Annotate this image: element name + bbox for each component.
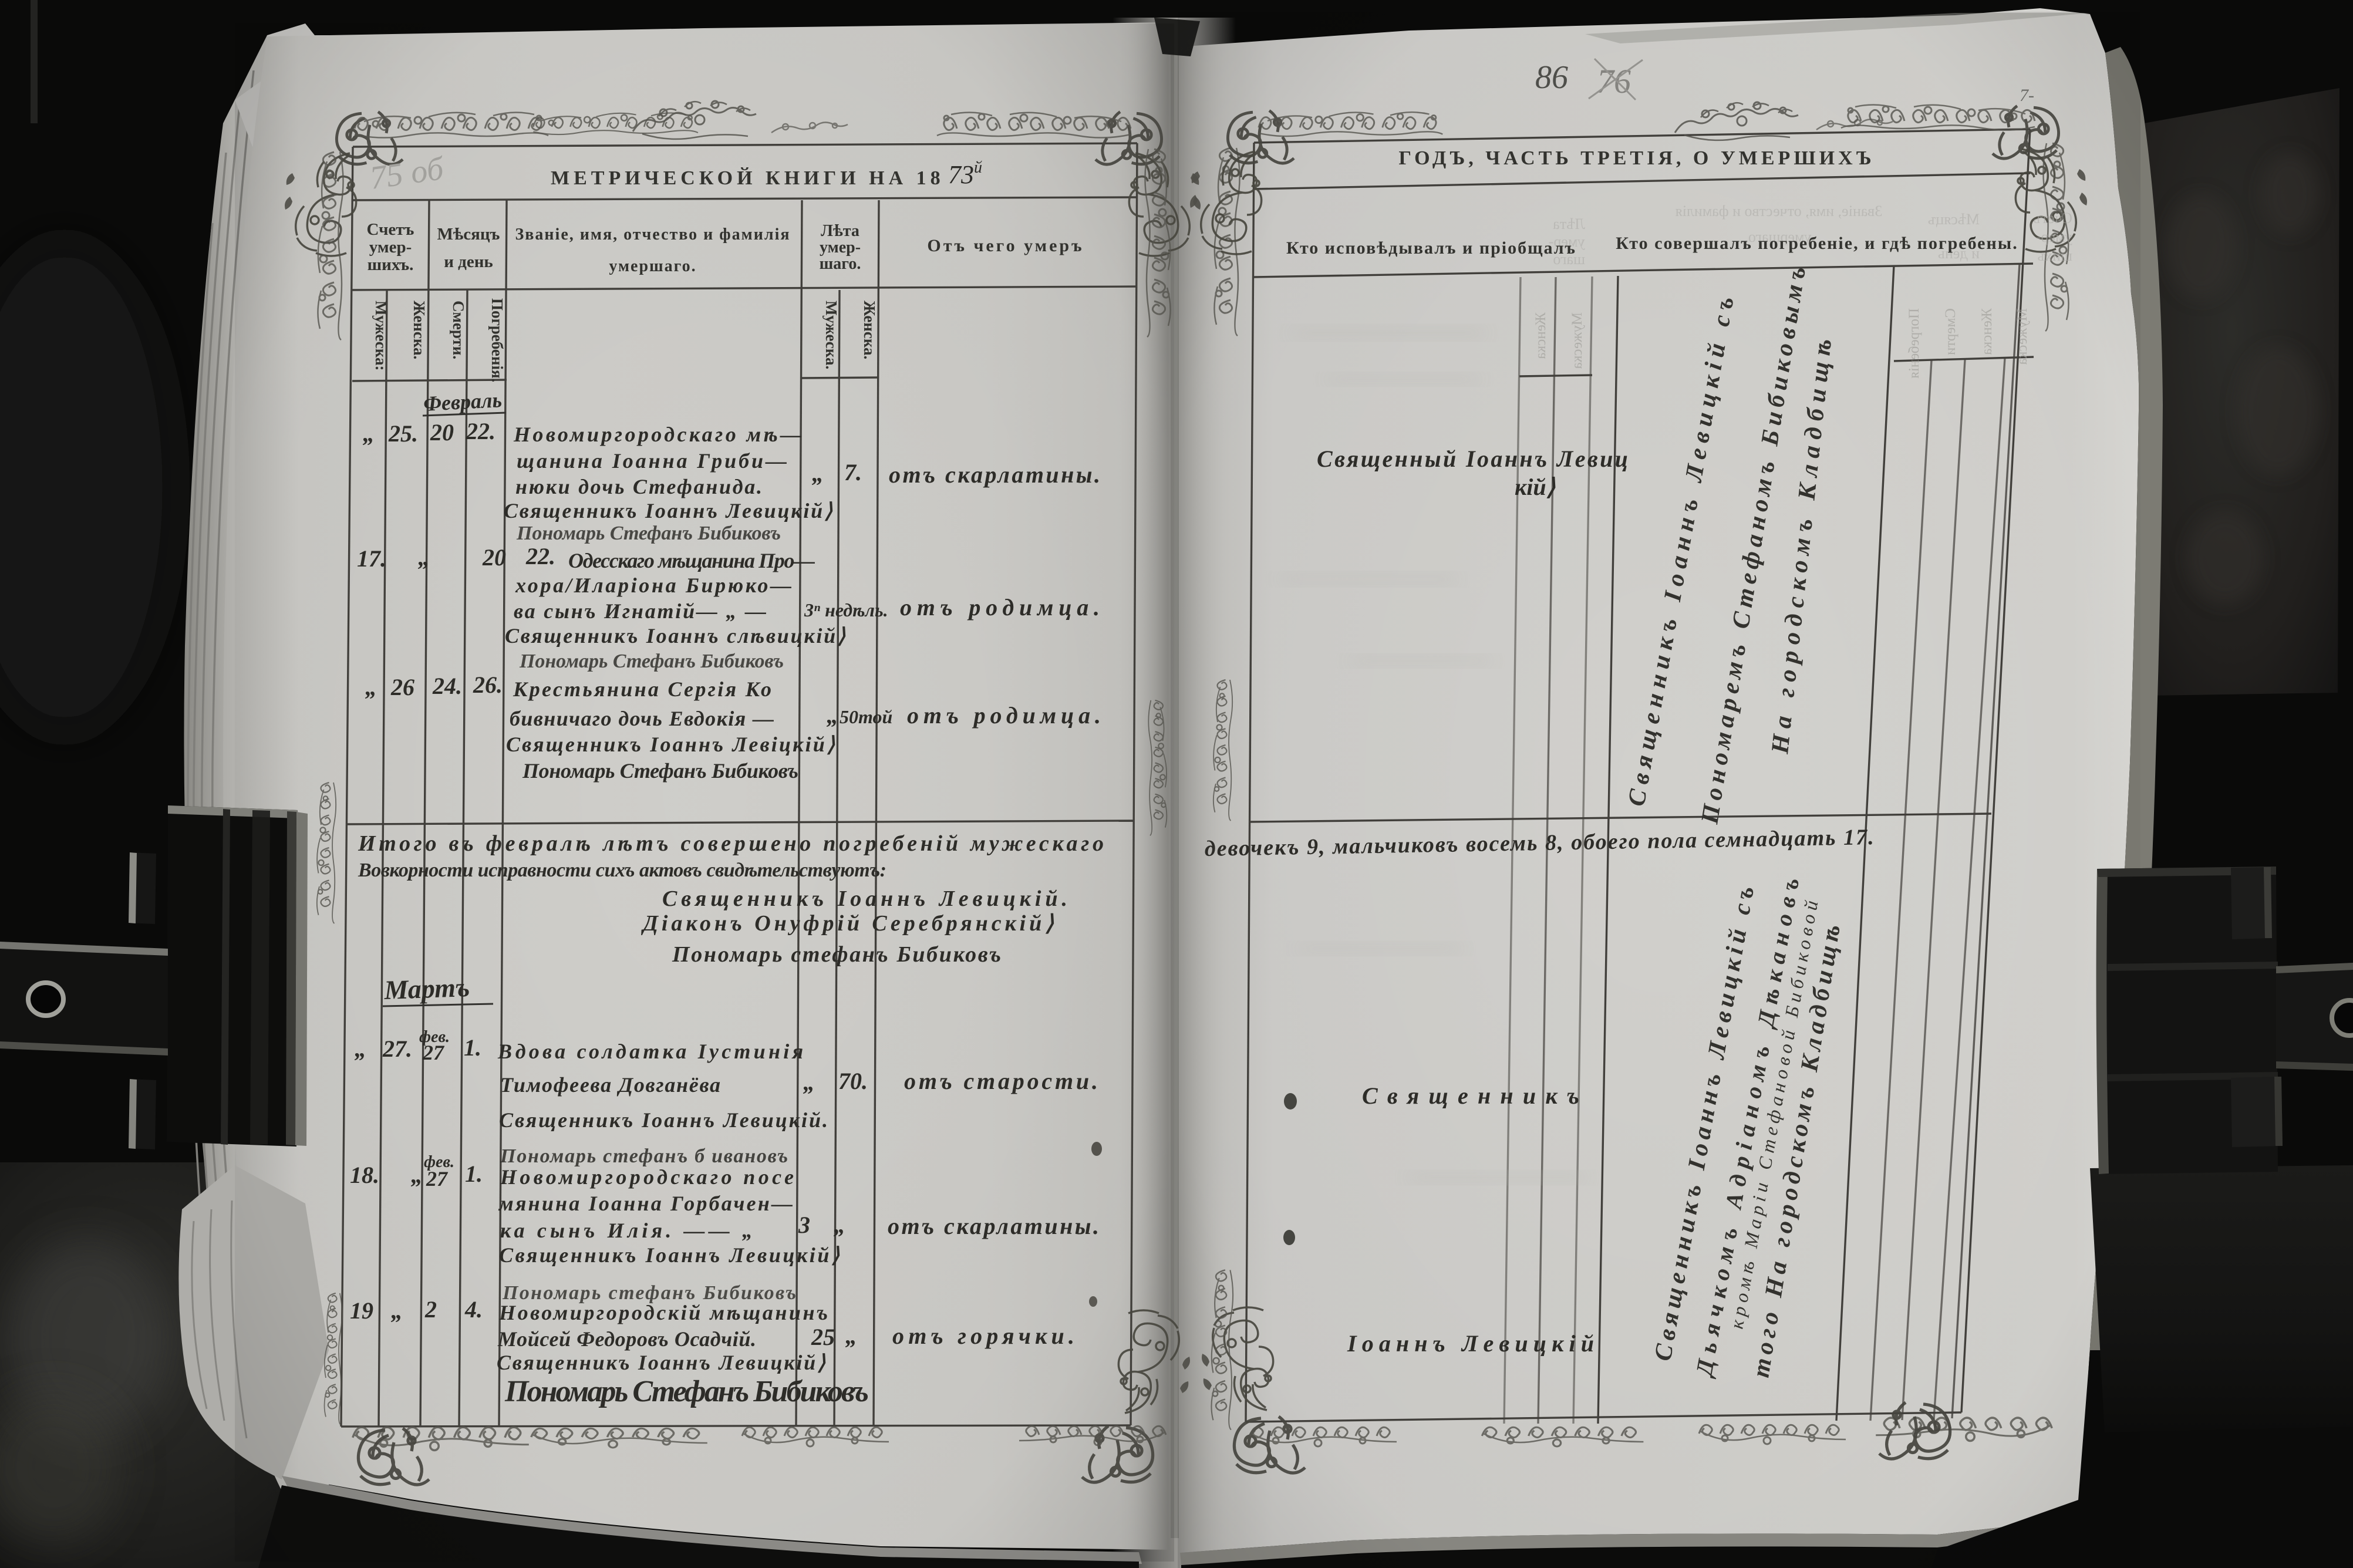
- svg-text:хора/Иларіона Бирюко—: хора/Иларіона Бирюко—: [515, 574, 791, 597]
- svg-text:Мужеска: Мужеска: [2014, 308, 2030, 365]
- svg-text:Погребенія: Погребенія: [1906, 308, 1922, 379]
- svg-text:Вдова солдатка Іустинія: Вдова солдатка Іустинія: [497, 1040, 803, 1063]
- svg-text:Отъ чего умеръ: Отъ чего умеръ: [927, 236, 1084, 255]
- svg-text:22.: 22.: [525, 543, 555, 569]
- svg-text:3ⁿ недѣль.: 3ⁿ недѣль.: [804, 599, 888, 621]
- svg-text:7.: 7.: [844, 459, 862, 485]
- svg-text:70.: 70.: [838, 1068, 868, 1094]
- svg-text:25.: 25.: [388, 420, 418, 447]
- svg-text:Женска.: Женска.: [410, 301, 428, 359]
- svg-text:Одесскаго мѣщанина Про—: Одесскаго мѣщанина Про—: [568, 549, 815, 572]
- svg-text:и день: и день: [444, 252, 493, 271]
- svg-text:отъ скарлатины.: отъ скарлатины.: [888, 1213, 1099, 1239]
- svg-text:4.: 4.: [464, 1296, 483, 1323]
- svg-text:шихъ: шихъ: [2038, 247, 2072, 264]
- svg-text:3: 3: [798, 1212, 810, 1238]
- svg-text:умершаго.: умершаго.: [609, 257, 696, 275]
- svg-text:умер-: умер-: [369, 238, 412, 257]
- svg-text:Іоаннъ Левицкій: Іоаннъ Левицкій: [1347, 1330, 1594, 1357]
- svg-text:Священникъ Іоаннъ слѣвицкій⟩: Священникъ Іоаннъ слѣвицкій⟩: [505, 624, 846, 648]
- svg-text:7-: 7-: [2020, 86, 2034, 105]
- svg-text:20: 20: [482, 544, 506, 571]
- svg-text:умер-: умер-: [2036, 228, 2072, 245]
- svg-text:Тимофеева Довганёва: Тимофеева Довганёва: [500, 1073, 720, 1097]
- svg-text:отъ старости.: отъ старости.: [904, 1068, 1098, 1094]
- svg-text:нюки дочь Стефанида.: нюки дочь Стефанида.: [515, 475, 762, 498]
- svg-text:Мартъ: Мартъ: [383, 972, 470, 1005]
- svg-text:ГОДЪ, ЧАСТЬ ТРЕТІЯ, О УМЕРШИХЪ: ГОДЪ, ЧАСТЬ ТРЕТІЯ, О УМЕРШИХЪ: [1398, 147, 1875, 169]
- svg-text:Кто исповѣдывалъ и пріобщалъ: Кто исповѣдывалъ и пріобщалъ: [1286, 238, 1576, 258]
- svg-text:20: 20: [430, 419, 454, 446]
- svg-text:25: 25: [811, 1324, 835, 1350]
- svg-text:умер-: умер-: [820, 238, 861, 257]
- svg-text:26: 26: [390, 674, 414, 700]
- svg-text:Пономарь Стефанъ Бибиковъ: Пономарь Стефанъ Бибиковъ: [504, 1375, 869, 1408]
- svg-text:„: „: [391, 1297, 403, 1324]
- svg-text:„: „: [812, 460, 824, 487]
- svg-text:Итого въ февралѣ лѣтъ совершен: Итого въ февралѣ лѣтъ совершено погребен…: [358, 831, 1104, 856]
- svg-text:„: „: [803, 1069, 815, 1095]
- svg-text:отъ скарлатины.: отъ скарлатины.: [889, 461, 1100, 488]
- svg-text:„: „: [363, 420, 375, 447]
- svg-text:Званіе, имя, отчество и фамилі: Званіе, имя, отчество и фамилія: [515, 225, 791, 244]
- svg-text:Новомиргородскій мѣщанинъ: Новомиргородскій мѣщанинъ: [498, 1301, 828, 1324]
- svg-text:Женска: Женска: [1533, 312, 1549, 359]
- svg-text:Лѣта: Лѣта: [1553, 215, 1585, 232]
- svg-text:Мѣсяцъ: Мѣсяцъ: [437, 225, 500, 244]
- svg-text:27.: 27.: [382, 1036, 412, 1062]
- svg-text:Священникъ Іоаннъ Левицкій⟩: Священникъ Іоаннъ Левицкій⟩: [504, 499, 833, 522]
- svg-text:Погребенія.: Погребенія.: [488, 298, 506, 382]
- svg-text:17.: 17.: [357, 545, 386, 572]
- svg-text:Священникъ Іоаннъ Левіцкій⟩: Священникъ Іоаннъ Левіцкій⟩: [506, 733, 835, 756]
- svg-text:27: 27: [426, 1167, 449, 1191]
- svg-text:Счетъ: Счетъ: [2034, 210, 2072, 227]
- svg-text:„: „: [365, 674, 377, 700]
- svg-text:1.: 1.: [465, 1161, 483, 1187]
- svg-text:Вовкорности исправности сихъ а: Вовкорности исправности сихъ актовъ свид…: [358, 859, 886, 881]
- svg-text:27: 27: [422, 1041, 445, 1064]
- svg-text:ва сынъ Игнатій— „ —: ва сынъ Игнатій— „ —: [514, 599, 766, 623]
- svg-text:86: 86: [1535, 59, 1568, 96]
- svg-text:Женска.: Женска.: [861, 301, 878, 359]
- svg-text:Мужеска.: Мужеска.: [822, 301, 840, 369]
- svg-text:Діаконъ Онуфрій Серебрянскій⟩: Діаконъ Онуфрій Серебрянскій⟩: [641, 911, 1054, 936]
- svg-text:„: „: [355, 1036, 366, 1062]
- svg-text:22.: 22.: [466, 418, 495, 444]
- svg-text:МЕТРИЧЕСКОЙ КНИГИ НА 18: МЕТРИЧЕСКОЙ КНИГИ НА 18: [551, 167, 945, 189]
- svg-text:Кто совершалъ погребеніе, и гд: Кто совершалъ погребеніе, и гдѣ погребен…: [1616, 234, 2018, 253]
- svg-text:50той: 50той: [840, 706, 892, 727]
- svg-text:Священный Іоаннъ Левиц: Священный Іоаннъ Левиц: [1317, 446, 1628, 472]
- svg-text:24.: 24.: [432, 673, 462, 699]
- svg-text:Смерти.: Смерти.: [450, 301, 467, 359]
- svg-text:Смерти: Смерти: [1943, 308, 1958, 355]
- svg-text:Женска: Женска: [1979, 308, 1995, 355]
- svg-text:шаго.: шаго.: [820, 255, 861, 273]
- svg-text:Мужеска:: Мужеска:: [372, 301, 390, 370]
- svg-text:„: „: [827, 702, 838, 729]
- svg-text:Священникъ Іоаннъ Левицкій⟩: Священникъ Іоаннъ Левицкій⟩: [497, 1351, 826, 1374]
- svg-text:Пономарь Стефанъ Бибиковъ: Пономарь Стефанъ Бибиковъ: [522, 759, 798, 783]
- svg-text:2: 2: [424, 1296, 437, 1323]
- svg-text:кій⟩: кій⟩: [1515, 474, 1556, 500]
- svg-text:Пономарь стефанъ Бибиковъ: Пономарь стефанъ Бибиковъ: [672, 942, 1001, 967]
- svg-text:„: „: [834, 1212, 845, 1238]
- svg-text:щанина Іоанна Гриби—: щанина Іоанна Гриби—: [517, 449, 787, 473]
- svg-text:„: „: [418, 544, 430, 571]
- svg-text:Лѣта: Лѣта: [821, 222, 859, 240]
- svg-text:26.: 26.: [473, 672, 503, 698]
- svg-text:Мѣсяцъ: Мѣсяцъ: [1928, 211, 1980, 228]
- svg-text:Званіе, имя, отчество и фамилі: Званіе, имя, отчество и фамилія: [1676, 203, 1883, 220]
- svg-text:„: „: [411, 1162, 423, 1188]
- svg-text:Священникъ Іоаннъ Левицкій⟩: Священникъ Іоаннъ Левицкій⟩: [499, 1243, 840, 1267]
- svg-text:Пономарь Стефанъ Бибиковъ: Пономарь Стефанъ Бибиковъ: [519, 650, 784, 672]
- svg-text:Февраль: Февраль: [423, 388, 503, 416]
- svg-text:Мойсей Федоровъ Осадчій.: Мойсей Федоровъ Осадчій.: [497, 1327, 756, 1351]
- svg-text:1.: 1.: [464, 1034, 481, 1061]
- svg-text:18.: 18.: [350, 1162, 379, 1188]
- svg-text:Счетъ: Счетъ: [367, 220, 414, 239]
- svg-text:мянина Іоанна Горбачен—: мянина Іоанна Горбачен—: [498, 1192, 793, 1215]
- svg-text:Пономарь стефанъ б ивановъ: Пономарь стефанъ б ивановъ: [500, 1145, 788, 1167]
- svg-text:шихъ.: шихъ.: [368, 255, 414, 274]
- svg-text:„: „: [845, 1323, 857, 1349]
- svg-text:Пономарь Стефанъ Бибиковъ: Пономарь Стефанъ Бибиковъ: [516, 522, 781, 544]
- svg-text:Мужеска: Мужеска: [1569, 312, 1585, 369]
- svg-text:19: 19: [350, 1297, 373, 1324]
